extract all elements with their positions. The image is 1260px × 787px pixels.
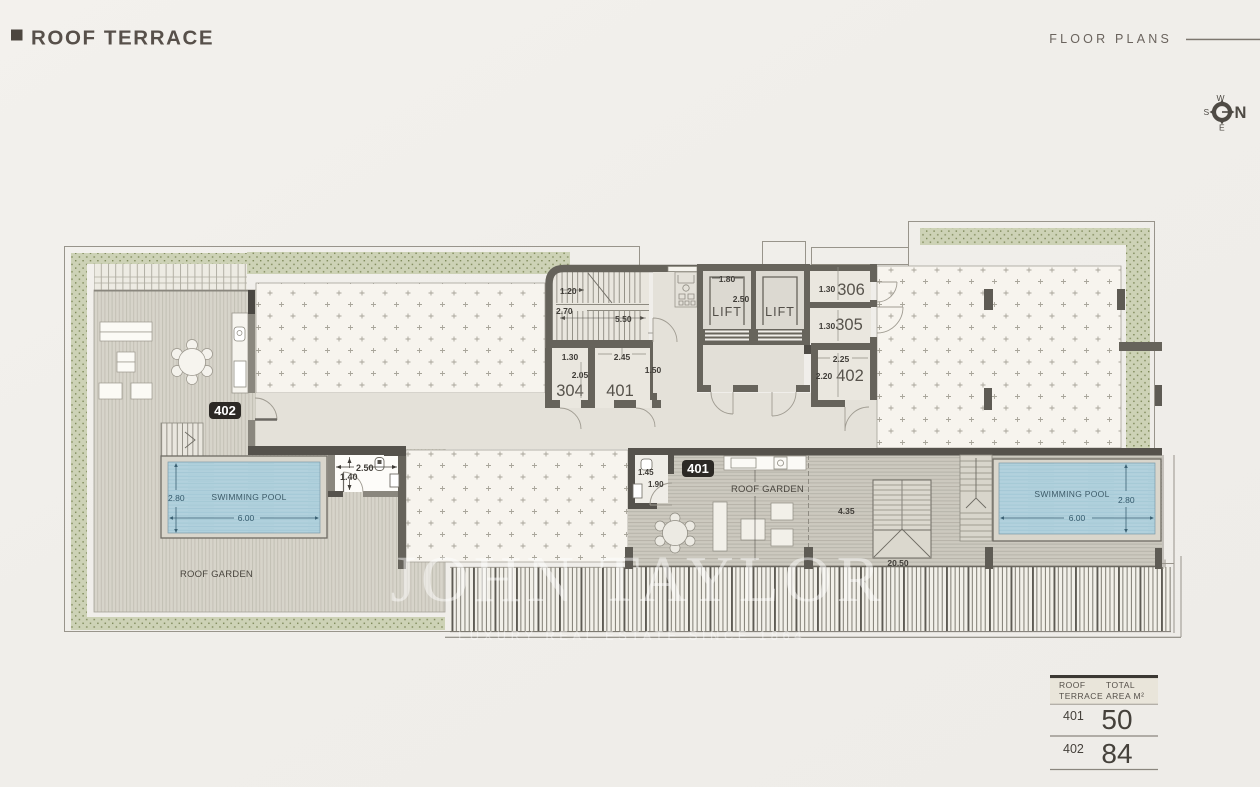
svg-text:2.80: 2.80 [168, 493, 185, 503]
svg-text:1.90: 1.90 [648, 480, 664, 489]
svg-text:LIFT: LIFT [712, 305, 742, 319]
svg-text:E: E [1219, 123, 1225, 133]
svg-text:2.50: 2.50 [356, 463, 374, 473]
svg-text:2.25: 2.25 [833, 354, 850, 364]
svg-text:S: S [1204, 107, 1210, 117]
svg-text:6.00: 6.00 [238, 513, 255, 523]
svg-text:ROOF TERRACE: ROOF TERRACE [31, 27, 214, 50]
svg-text:402: 402 [1063, 742, 1084, 756]
svg-text:304: 304 [556, 382, 584, 400]
svg-text:401: 401 [687, 461, 709, 476]
svg-text:50: 50 [1101, 704, 1132, 735]
svg-text:401: 401 [606, 382, 634, 400]
svg-text:2.50: 2.50 [733, 294, 750, 304]
svg-text:402: 402 [214, 403, 236, 418]
svg-text:305: 305 [835, 316, 863, 334]
svg-text:ROOF: ROOF [1059, 680, 1086, 690]
svg-text:306: 306 [837, 281, 865, 299]
svg-text:N: N [1235, 104, 1247, 122]
svg-text:LUXURY REAL ESTATE SINCE 1864: LUXURY REAL ESTATE SINCE 1864 [458, 628, 806, 643]
svg-text:1.30: 1.30 [562, 352, 579, 362]
svg-text:2.20: 2.20 [816, 371, 833, 381]
svg-text:TERRACE: TERRACE [1059, 691, 1103, 701]
svg-text:1.30: 1.30 [819, 284, 836, 294]
svg-text:402: 402 [836, 367, 864, 385]
svg-text:1.20: 1.20 [560, 286, 577, 296]
svg-text:1.40: 1.40 [340, 472, 358, 482]
svg-text:84: 84 [1101, 738, 1132, 769]
svg-text:1.45: 1.45 [638, 468, 654, 477]
svg-text:401: 401 [1063, 709, 1084, 723]
svg-text:2.80: 2.80 [1118, 495, 1135, 505]
svg-text:ROOF GARDEN: ROOF GARDEN [731, 484, 804, 495]
svg-text:W: W [1217, 93, 1225, 103]
svg-text:FLOOR PLANS: FLOOR PLANS [1049, 32, 1172, 46]
svg-text:JOHN TAYLOR: JOHN TAYLOR [390, 543, 885, 616]
svg-text:5.50: 5.50 [615, 314, 632, 324]
svg-text:AREA M²: AREA M² [1106, 691, 1144, 701]
svg-text:LIFT: LIFT [765, 305, 795, 319]
svg-text:1.80: 1.80 [719, 274, 736, 284]
svg-text:SWIMMING POOL: SWIMMING POOL [211, 492, 286, 502]
svg-text:6.00: 6.00 [1069, 513, 1086, 523]
svg-text:2.05: 2.05 [572, 370, 589, 380]
svg-text:ROOF GARDEN: ROOF GARDEN [180, 569, 253, 580]
svg-text:SWIMMING POOL: SWIMMING POOL [1034, 489, 1109, 499]
svg-text:2.70: 2.70 [556, 306, 573, 316]
svg-text:1.50: 1.50 [645, 365, 662, 375]
svg-text:4.35: 4.35 [838, 506, 855, 516]
svg-text:TOTAL: TOTAL [1106, 680, 1135, 690]
svg-text:1.30: 1.30 [819, 321, 836, 331]
